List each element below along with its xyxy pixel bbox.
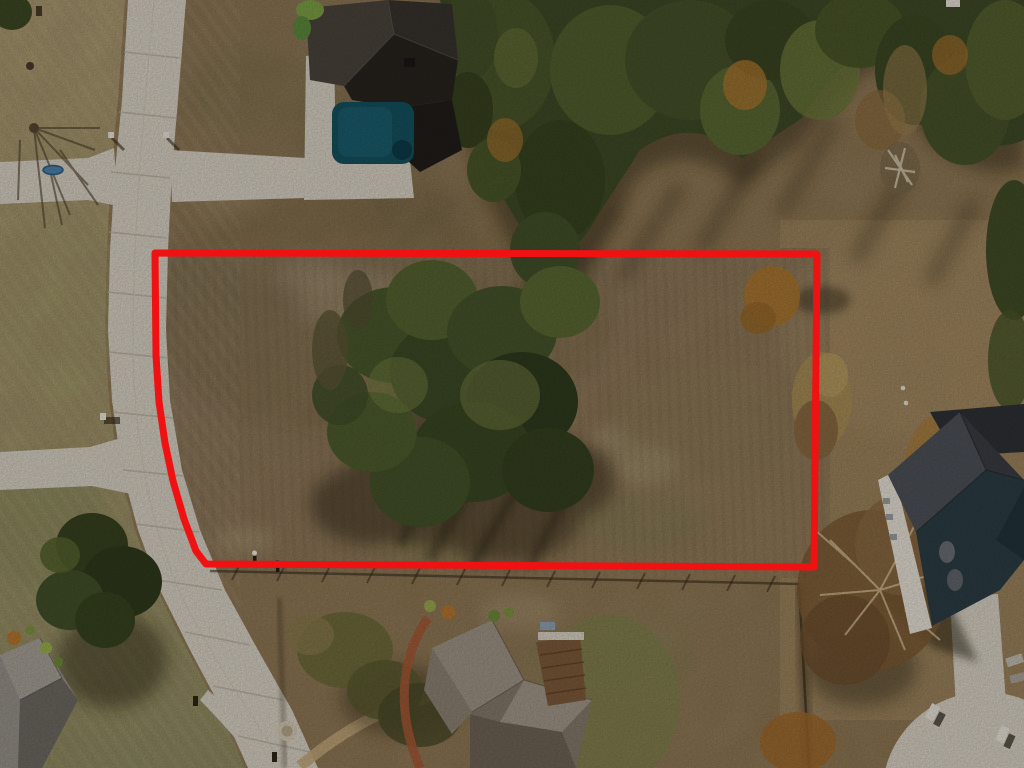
aerial-photo — [0, 0, 1024, 768]
aerial-photo-canvas — [0, 0, 1024, 768]
photo-grain — [0, 0, 1024, 768]
